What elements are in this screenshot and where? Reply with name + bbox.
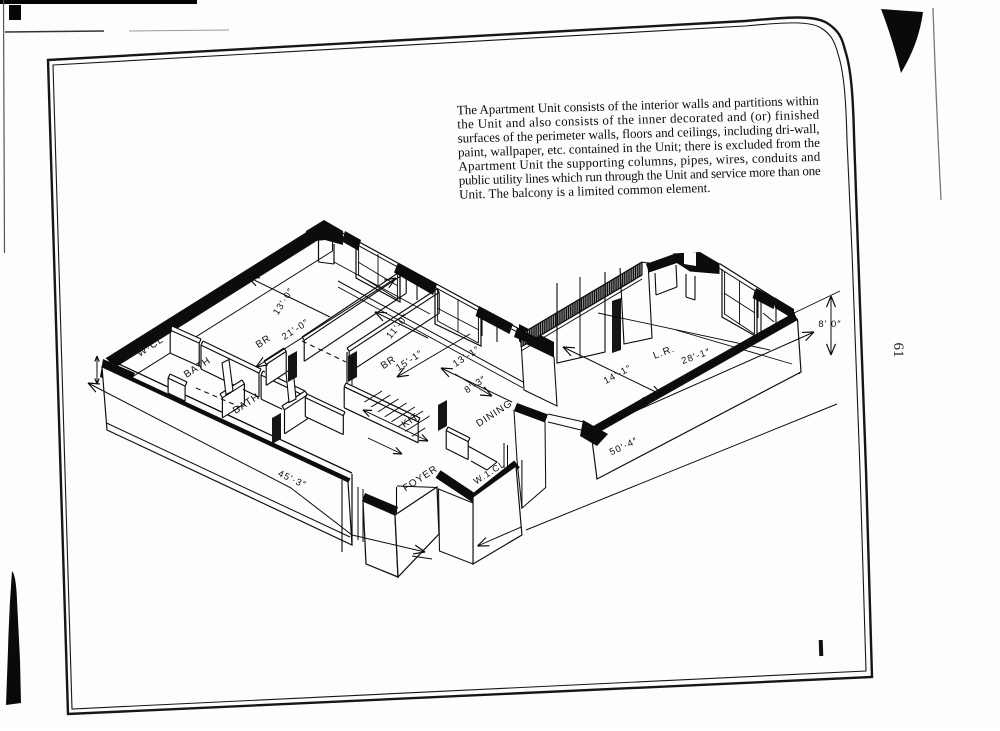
- svg-text:61: 61: [890, 343, 906, 358]
- svg-text:8’ 0″: 8’ 0″: [818, 319, 841, 330]
